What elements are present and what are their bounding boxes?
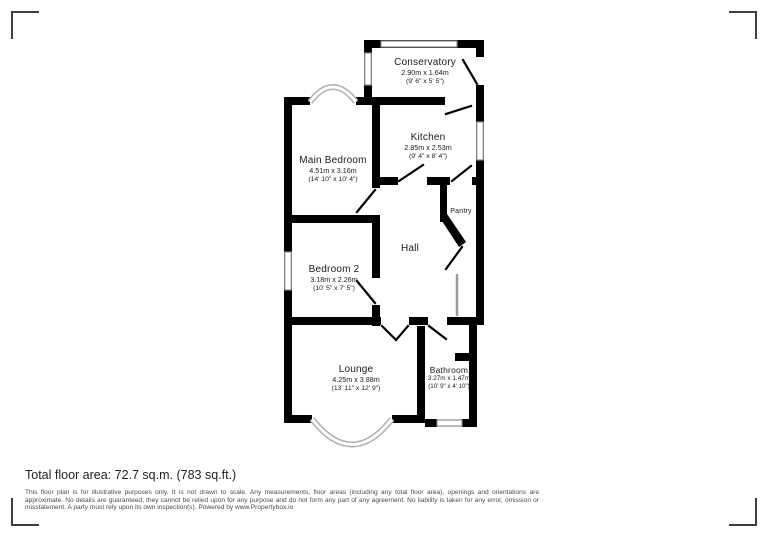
room-dimensions-metric: 4.51m x 3.16m xyxy=(299,166,366,175)
floorplan-page: Conservatory 2.90m x 1.64m (9' 6" x 5' 5… xyxy=(0,0,768,537)
room-name: Pantry xyxy=(450,208,471,216)
room-name: Lounge xyxy=(332,364,381,375)
room-dimensions-imperial: (9' 4" x 8' 4") xyxy=(404,152,452,161)
room-label-main-bedroom: Main Bedroom 4.51m x 3.16m (14' 10" x 10… xyxy=(299,155,366,184)
door-lounge-right xyxy=(396,326,408,340)
total-floor-area-text: Total floor area: 72.7 sq.m. (783 sq.ft.… xyxy=(25,468,236,482)
room-name: Hall xyxy=(401,243,419,254)
room-label-kitchen: Kitchen 2.85m x 2.53m (9' 4" x 8' 4") xyxy=(404,132,452,161)
door-bedroom2 xyxy=(357,281,375,303)
room-label-lounge: Lounge 4.25m x 3.88m (13' 11" x 12' 9") xyxy=(332,364,381,393)
window-conservatory-left xyxy=(365,53,372,85)
window-conservatory-top xyxy=(381,41,457,47)
room-dimensions-metric: 4.25m x 3.88m xyxy=(332,375,381,384)
room-name: Kitchen xyxy=(404,132,452,143)
room-dimensions-imperial: (10' 9" x 4' 10") xyxy=(428,383,470,391)
window-bedroom2-left xyxy=(285,252,292,290)
room-dimensions-imperial: (10' 5" x 7' 5") xyxy=(309,284,360,293)
room-dimensions-metric: 3.27m x 1.47m xyxy=(428,375,470,383)
room-dimensions-metric: 3.18m x 2.26m xyxy=(309,275,360,284)
room-label-bathroom: Bathroom 3.27m x 1.47m (10' 9" x 4' 10") xyxy=(428,365,470,391)
room-name: Bathroom xyxy=(428,365,470,375)
room-dimensions-imperial: (13' 11" x 12' 9") xyxy=(332,384,381,393)
door-bathroom xyxy=(429,326,446,339)
room-dimensions-imperial: (14' 10" x 10' 4") xyxy=(299,175,366,184)
window-bathroom-bottom xyxy=(437,420,462,426)
room-name: Conservatory xyxy=(394,57,456,68)
room-label-bedroom2: Bedroom 2 3.18m x 2.26m (10' 5" x 7' 5") xyxy=(309,264,360,293)
disclaimer-text: This floor plan is for illustrative purp… xyxy=(25,489,539,512)
door-pantry-hall xyxy=(446,247,462,269)
door-lounge-left xyxy=(382,326,396,340)
room-label-hall: Hall xyxy=(401,243,419,254)
room-dimensions-metric: 2.85m x 2.53m xyxy=(404,143,452,152)
room-label-conservatory: Conservatory 2.90m x 1.64m (9' 6" x 5' 5… xyxy=(394,57,456,86)
room-dimensions-metric: 2.90m x 1.64m xyxy=(394,68,456,77)
door-kitchen-hall xyxy=(399,165,423,181)
room-dimensions-imperial: (9' 6" x 5' 5") xyxy=(394,77,456,86)
room-name: Bedroom 2 xyxy=(309,264,360,275)
door-kitchen-pantry xyxy=(452,166,471,181)
room-name: Main Bedroom xyxy=(299,155,366,166)
door-conservatory-kitchen xyxy=(446,106,471,114)
room-label-pantry: Pantry xyxy=(450,208,471,216)
door-main-bedroom xyxy=(357,190,375,212)
floor-plan-drawing xyxy=(0,0,768,537)
window-kitchen-right xyxy=(477,122,484,160)
door-conservatory-exterior xyxy=(463,60,477,84)
